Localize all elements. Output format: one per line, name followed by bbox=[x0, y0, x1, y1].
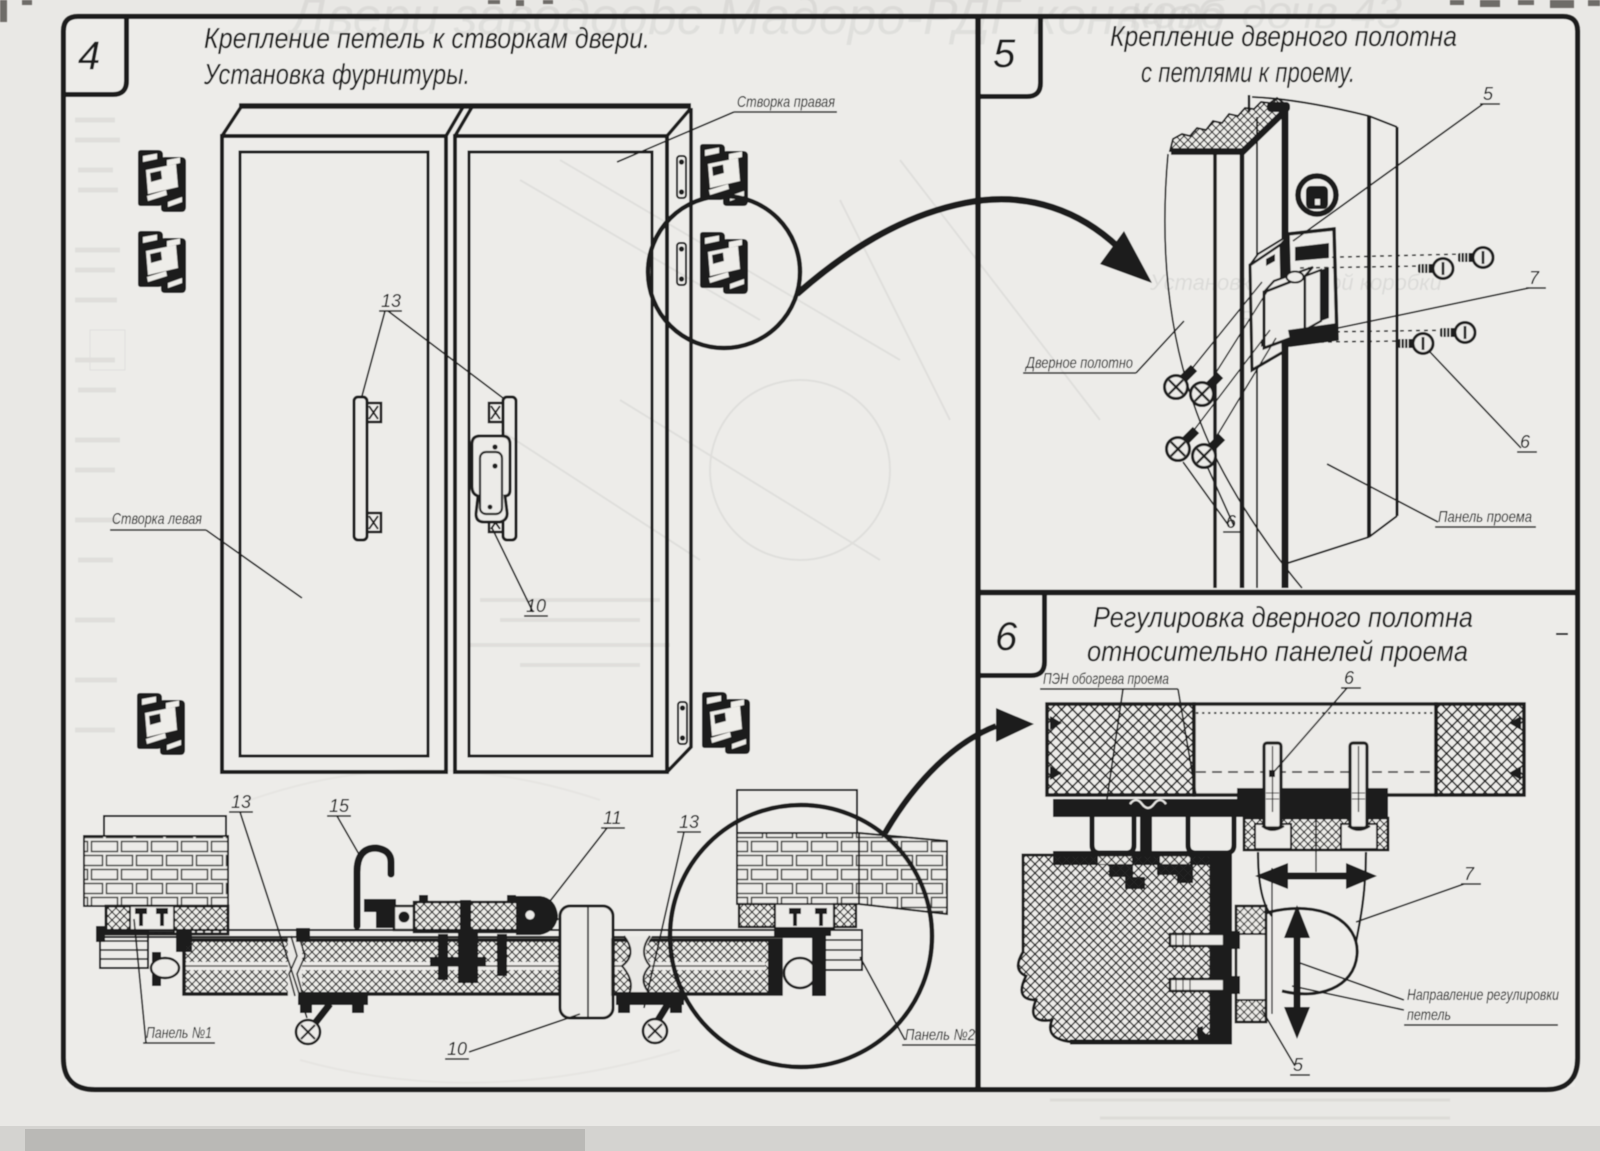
svg-text:7: 7 bbox=[1529, 268, 1540, 288]
svg-text:с петлями к проему.: с петлями к проему. bbox=[1141, 57, 1355, 89]
svg-text:Направление регулировки: Направление регулировки bbox=[1407, 987, 1559, 1004]
svg-text:5: 5 bbox=[1483, 84, 1494, 104]
svg-text:Панель №2: Панель №2 bbox=[905, 1027, 975, 1044]
svg-text:Панель №1: Панель №1 bbox=[146, 1025, 212, 1042]
svg-text:Регулировка дверного полотна: Регулировка дверного полотна bbox=[1093, 602, 1473, 634]
svg-text:6: 6 bbox=[995, 615, 1018, 659]
svg-text:5: 5 bbox=[993, 32, 1016, 76]
svg-text:13: 13 bbox=[679, 812, 699, 832]
svg-text:4: 4 bbox=[78, 34, 100, 78]
svg-text:петель: петель bbox=[1407, 1007, 1451, 1024]
svg-text:11: 11 bbox=[603, 808, 622, 828]
svg-text:13: 13 bbox=[231, 792, 251, 812]
svg-text:Створка правая: Створка правая bbox=[737, 94, 835, 111]
svg-text:относительно панелей проема: относительно панелей проема bbox=[1087, 636, 1468, 668]
svg-text:Дверное полотно: Дверное полотно bbox=[1024, 355, 1133, 372]
svg-text:ПЭН обогрева проема: ПЭН обогрева проема bbox=[1043, 671, 1169, 688]
svg-text:Крепление дверного полотна: Крепление дверного полотна bbox=[1110, 21, 1457, 53]
svg-text:6: 6 bbox=[1344, 668, 1355, 688]
svg-text:13: 13 bbox=[381, 291, 401, 311]
svg-text:Створка левая: Створка левая bbox=[112, 511, 202, 528]
svg-text:Панель проема: Панель проема bbox=[1438, 509, 1532, 526]
svg-text:15: 15 bbox=[329, 796, 350, 816]
svg-text:10: 10 bbox=[447, 1039, 467, 1059]
svg-text:Установка фурнитуры.: Установка фурнитуры. bbox=[203, 59, 470, 91]
svg-text:6: 6 bbox=[1520, 432, 1531, 452]
svg-text:7: 7 bbox=[1464, 864, 1475, 884]
svg-text:10: 10 bbox=[526, 596, 546, 616]
svg-text:Крепление петель к створкам дв: Крепление петель к створкам двери. bbox=[204, 23, 650, 55]
